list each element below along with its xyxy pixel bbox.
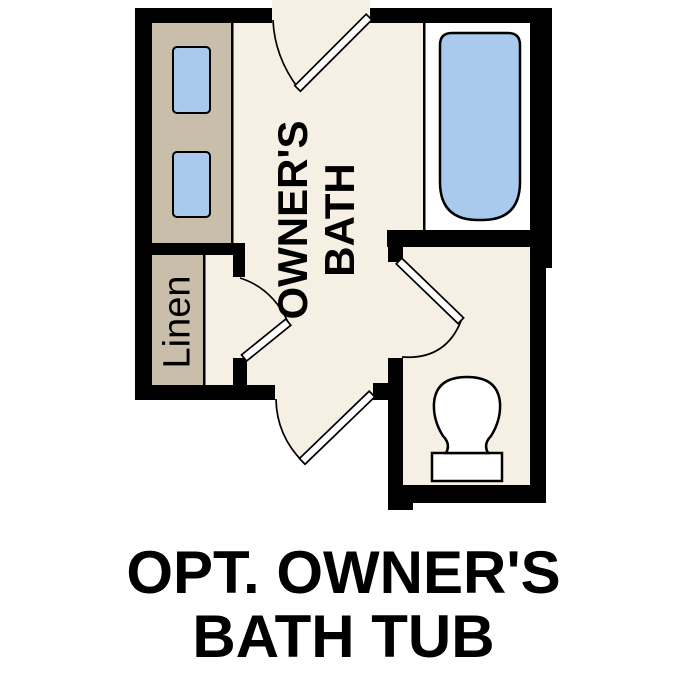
- tub-alcove-divider-line: [423, 23, 426, 230]
- bottom-doorway-floor: [276, 384, 374, 462]
- plan-caption-line2: BATH TUB: [0, 605, 687, 669]
- vanity-sink-1: [173, 47, 210, 113]
- vanity-sink-2: [173, 152, 210, 217]
- bathtub: [440, 33, 520, 220]
- plan-caption-line1: OPT. OWNER'S: [0, 541, 687, 605]
- linen-closet-edge-line: [203, 255, 206, 385]
- floor-plan: OWNER'S BATH Linen: [0, 0, 687, 530]
- wall-segment: [387, 230, 552, 247]
- wall-segment: [388, 485, 546, 503]
- wall-segment: [135, 385, 275, 400]
- wall-segment: [135, 8, 152, 400]
- plan-caption: OPT. OWNER'S BATH TUB: [0, 541, 687, 669]
- wall-segment: [233, 358, 247, 385]
- wall-segment: [135, 243, 245, 255]
- toilet: [432, 377, 502, 481]
- wall-segment: [135, 8, 272, 23]
- vanity-counter-edge-line: [231, 23, 234, 243]
- room-label-line2: BATH: [316, 163, 363, 277]
- wall-segment: [370, 8, 552, 23]
- linen-label: Linen: [157, 276, 199, 369]
- wall-segment: [233, 255, 245, 277]
- entry-opening-floor: [272, 0, 370, 24]
- wall-segment: [530, 268, 546, 503]
- room-label-line1: OWNER'S: [269, 121, 316, 320]
- wall-segment: [388, 358, 403, 485]
- floor-plan-page: OWNER'S BATH Linen OPT. OWNER'S BATH TUB: [0, 0, 687, 687]
- toilet-tank: [432, 453, 502, 481]
- wall-segment: [530, 8, 552, 268]
- wall-segment: [388, 503, 413, 510]
